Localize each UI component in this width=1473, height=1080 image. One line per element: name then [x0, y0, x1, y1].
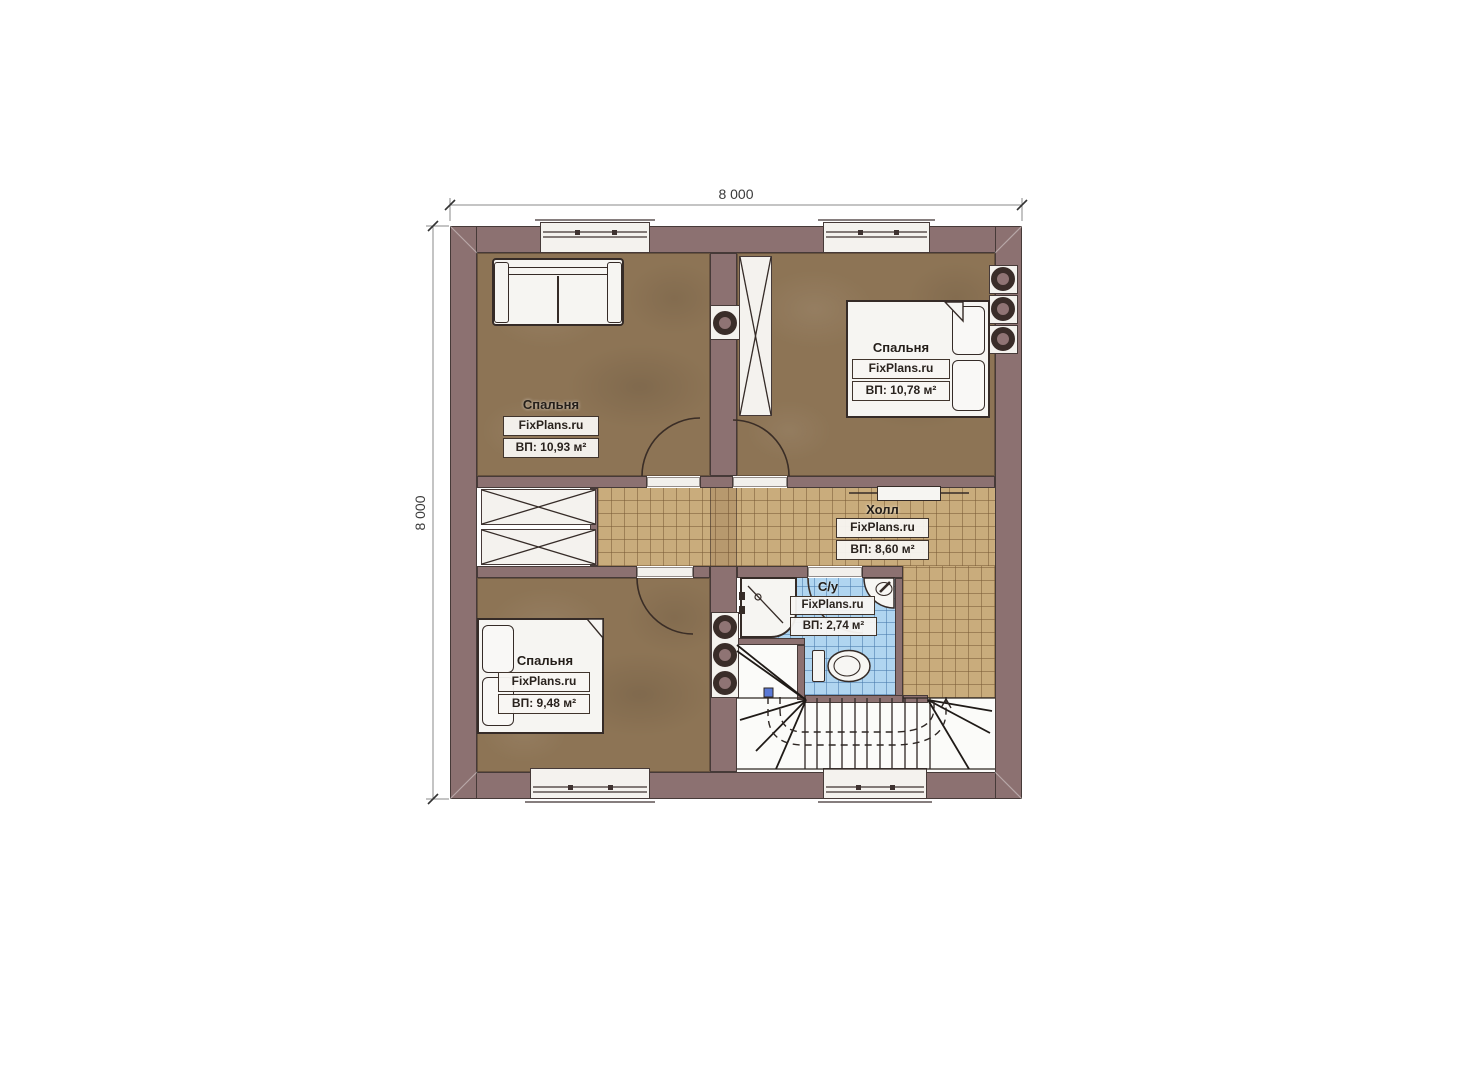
door-threshold-bedroom-tr [733, 477, 787, 487]
corridor-passage-shade [710, 488, 737, 566]
sofa-armrest [494, 262, 509, 323]
sofa-seat-divider [557, 276, 559, 323]
area-tag: ВП: 10,93 м² [503, 438, 599, 458]
shower-cabin [740, 577, 797, 638]
room-name-bedroom-top-right: Спальня [852, 340, 950, 355]
sofa-back-line [508, 260, 608, 275]
corridor-top-wall-a [477, 476, 647, 488]
area-tag: ВП: 10,78 м² [852, 381, 950, 401]
area-tag: ВП: 8,60 м² [836, 540, 929, 560]
pillow [952, 360, 985, 411]
window-bottom-left [530, 768, 650, 799]
sofa [492, 258, 624, 326]
pillow [952, 306, 985, 355]
area-tag: ВП: 9,48 м² [498, 694, 590, 714]
window-top-left [540, 222, 650, 253]
sofa-armrest [607, 262, 622, 323]
wall-between-top-bedrooms [710, 253, 737, 476]
chimney-flue-icon [991, 327, 1015, 351]
window-bottom-right [823, 768, 927, 799]
room-name-bedroom-bottom-left: Спальня [501, 653, 589, 668]
wardrobe-left-2 [481, 529, 596, 565]
window-top-right [823, 222, 930, 253]
landing-right-wall [797, 645, 805, 700]
corridor-bottom-wall-b [693, 566, 710, 578]
stair-stub-wall [903, 695, 928, 703]
bathroom-bottom-wall [805, 695, 903, 703]
room-name-bedroom-top-left: Спальня [503, 397, 599, 412]
door-threshold-bedroom-bl [637, 567, 693, 577]
wardrobe-top-right-room [739, 256, 772, 416]
chimney-flue-icon [713, 643, 737, 667]
brand-tag: FixPlans.ru [852, 359, 950, 379]
area-tag: ВП: 2,74 м² [790, 617, 877, 636]
bathroom-top-wall-right [862, 566, 903, 578]
door-threshold-bathroom [808, 567, 862, 577]
dimension-label-left: 8 000 [412, 483, 428, 543]
corridor-top-wall-b [700, 476, 733, 488]
wardrobe-left-1 [481, 489, 596, 525]
bathroom-right-wall [895, 578, 903, 703]
chimney-flue-icon [713, 311, 737, 335]
staircase-area [737, 698, 995, 772]
floor-plan-canvas: Спальня FixPlans.ru ВП: 10,93 м² Спальня… [0, 0, 1473, 1080]
corridor-bottom-wall-a [477, 566, 637, 578]
room-name-hall: Холл [836, 502, 929, 517]
chimney-flue-icon [991, 267, 1015, 291]
stair-landing [737, 645, 797, 700]
brand-tag: FixPlans.ru [503, 416, 599, 436]
chimney-flue-icon [713, 671, 737, 695]
exterior-wall-left [450, 226, 477, 799]
exterior-wall-top [450, 226, 1022, 253]
brand-tag: FixPlans.ru [836, 518, 929, 538]
chimney-flue-icon [991, 297, 1015, 321]
brand-tag: FixPlans.ru [498, 672, 590, 692]
chimney-flue-icon [713, 615, 737, 639]
brand-tag: FixPlans.ru [790, 596, 875, 615]
door-threshold-bedroom-tl [647, 477, 700, 487]
room-name-bathroom: С/у [801, 579, 855, 594]
hall-extension-floor [903, 566, 995, 698]
dimension-label-top: 8 000 [450, 186, 1022, 202]
hall-console [877, 486, 941, 501]
landing-top-wall [737, 638, 805, 645]
toilet-tank [812, 650, 825, 682]
